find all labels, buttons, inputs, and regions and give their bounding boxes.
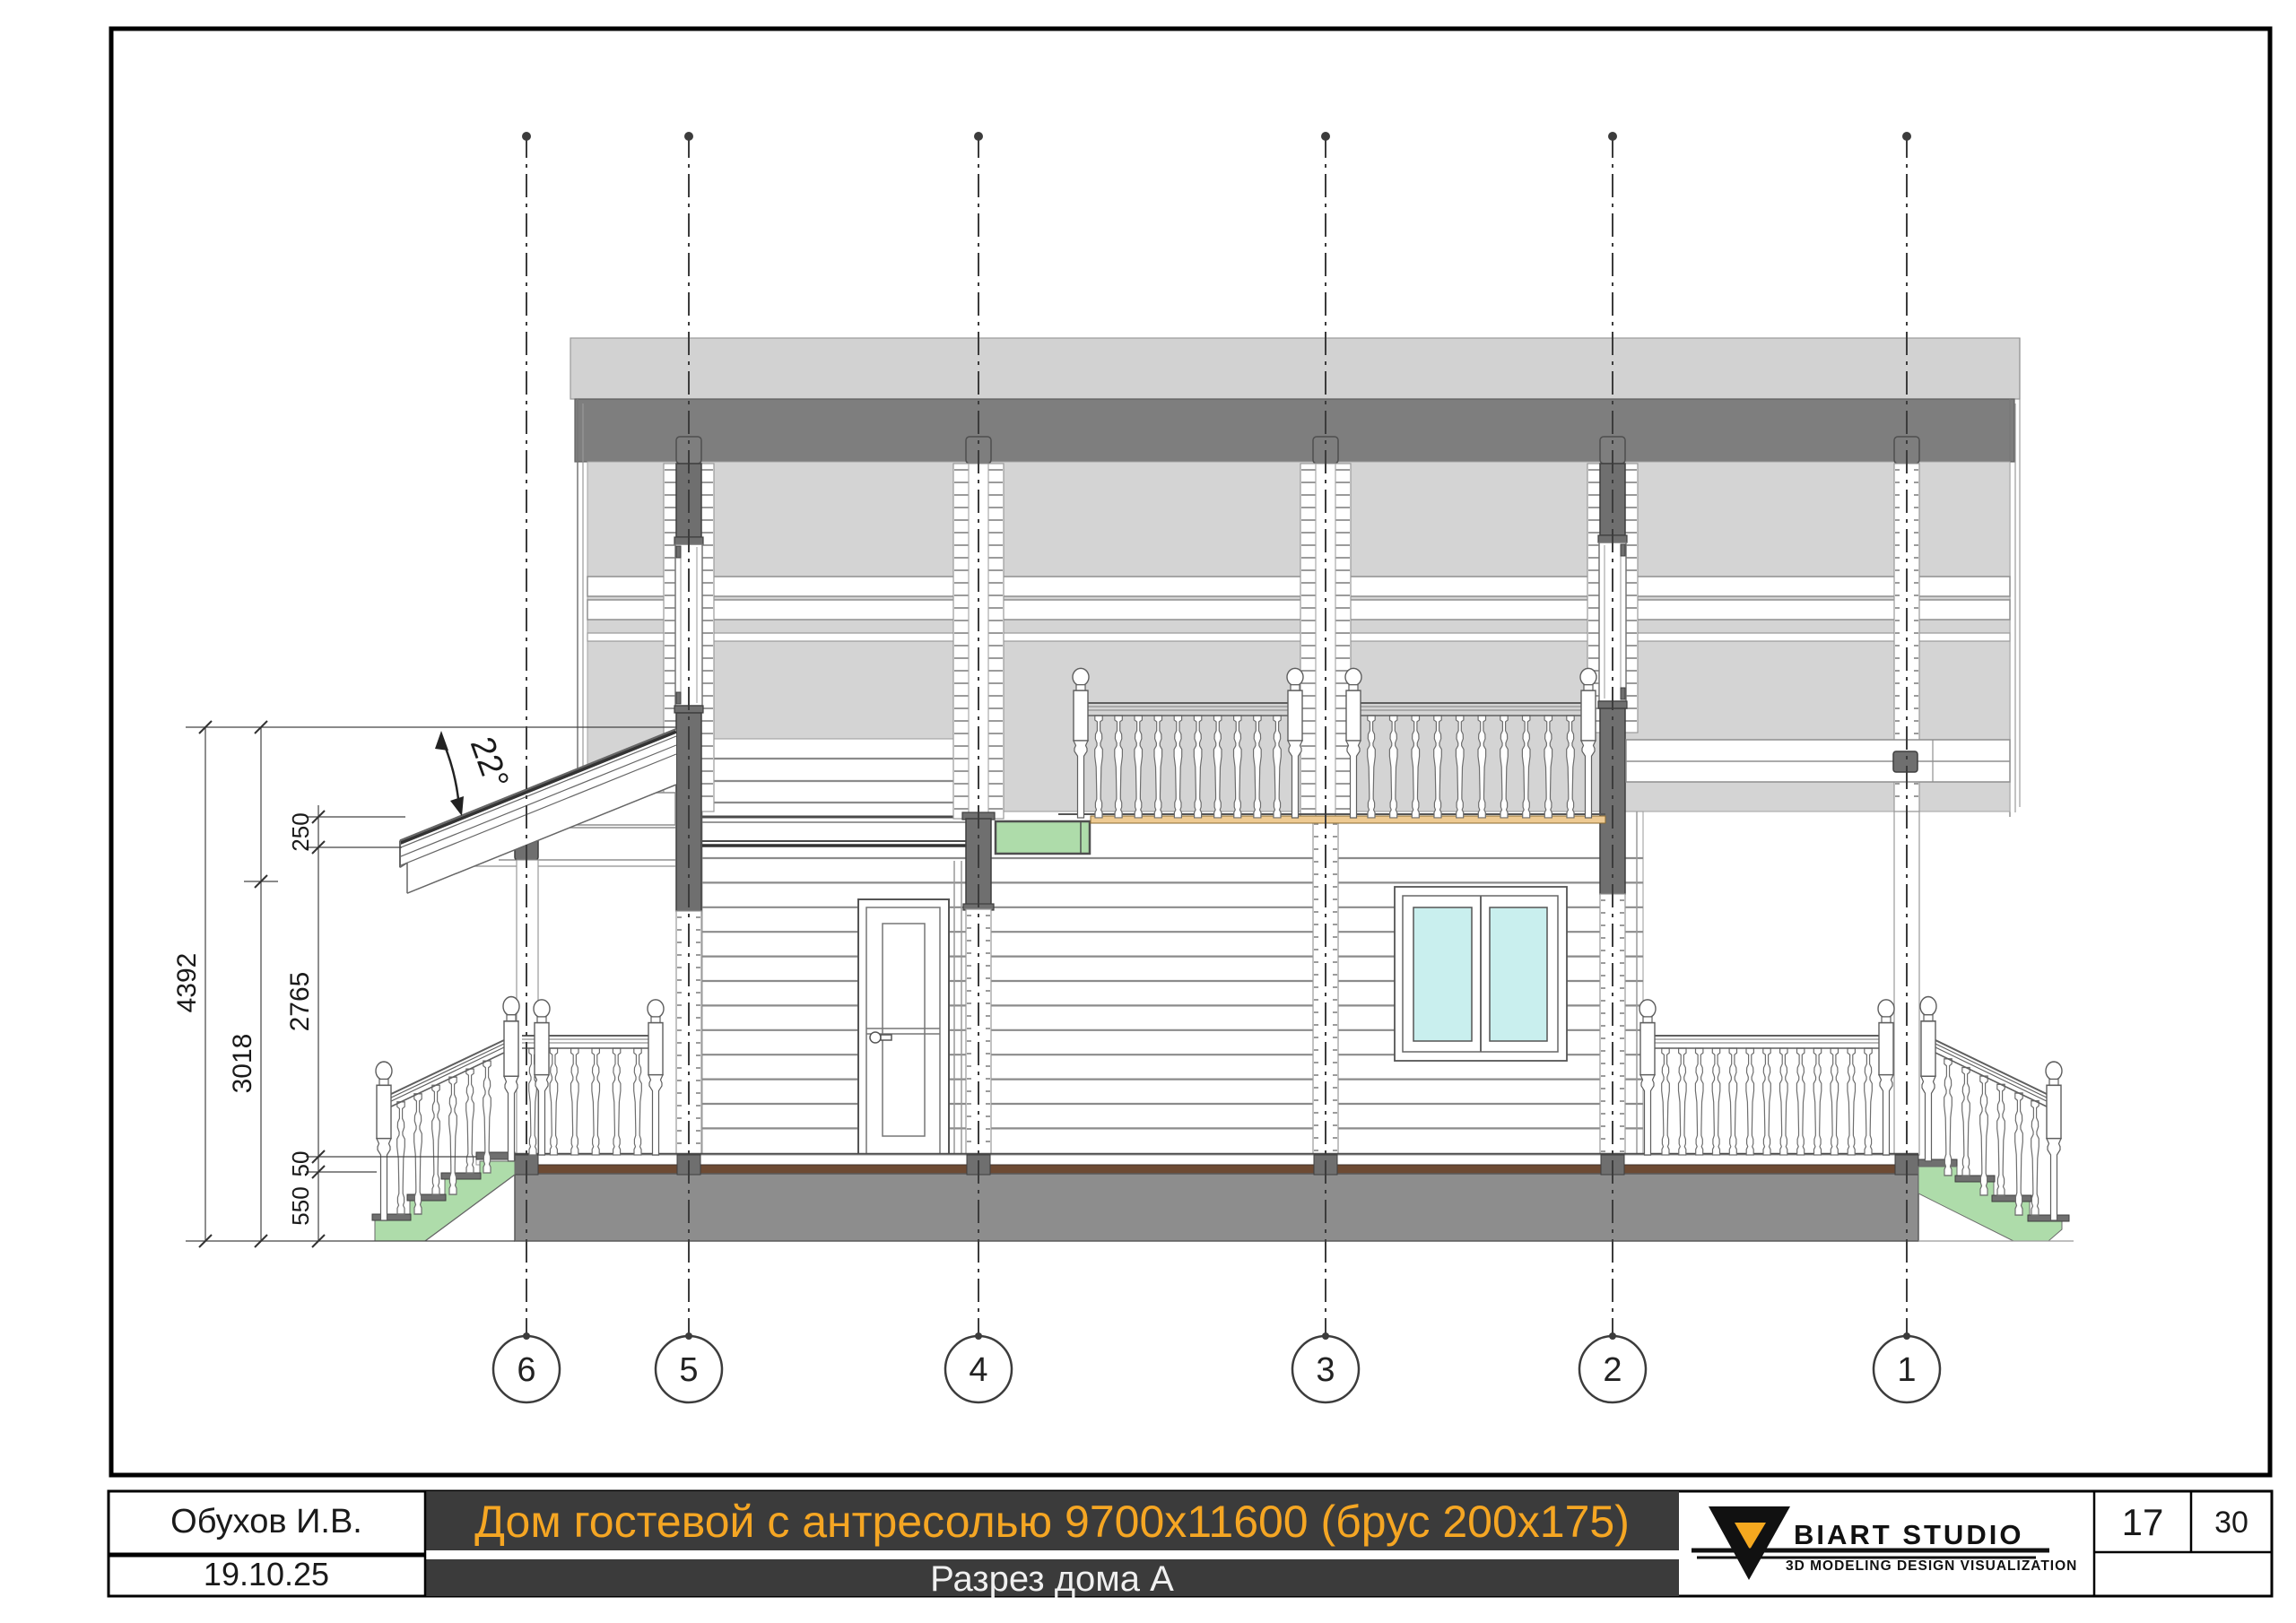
svg-text:550: 550 <box>287 1186 314 1225</box>
svg-text:19.10.25: 19.10.25 <box>204 1556 329 1593</box>
svg-text:30: 30 <box>2214 1506 2248 1540</box>
svg-text:4: 4 <box>969 1351 987 1389</box>
svg-text:50: 50 <box>287 1151 314 1177</box>
svg-text:4392: 4392 <box>172 953 202 1013</box>
svg-text:17: 17 <box>2122 1501 2164 1543</box>
svg-text:Обухов И.В.: Обухов И.В. <box>170 1503 362 1541</box>
svg-text:2: 2 <box>1603 1351 1622 1389</box>
svg-text:3: 3 <box>1316 1351 1335 1389</box>
svg-text:250: 250 <box>287 812 314 851</box>
svg-text:22°: 22° <box>463 733 516 794</box>
svg-text:6: 6 <box>517 1351 535 1389</box>
svg-text:5: 5 <box>679 1351 698 1389</box>
svg-text:BIART STUDIO: BIART STUDIO <box>1794 1519 2023 1550</box>
svg-text:3D MODELING DESIGN VISUALIZATI: 3D MODELING DESIGN VISUALIZATION <box>1786 1558 2077 1574</box>
svg-text:3018: 3018 <box>228 1034 257 1094</box>
svg-text:2765: 2765 <box>285 972 315 1032</box>
svg-text:1: 1 <box>1897 1351 1916 1389</box>
svg-text:Разрез дома А: Разрез дома А <box>930 1559 1174 1599</box>
svg-text:Дом гостевой с антресолью 9700: Дом гостевой с антресолью 9700х11600 (бр… <box>474 1497 1630 1547</box>
